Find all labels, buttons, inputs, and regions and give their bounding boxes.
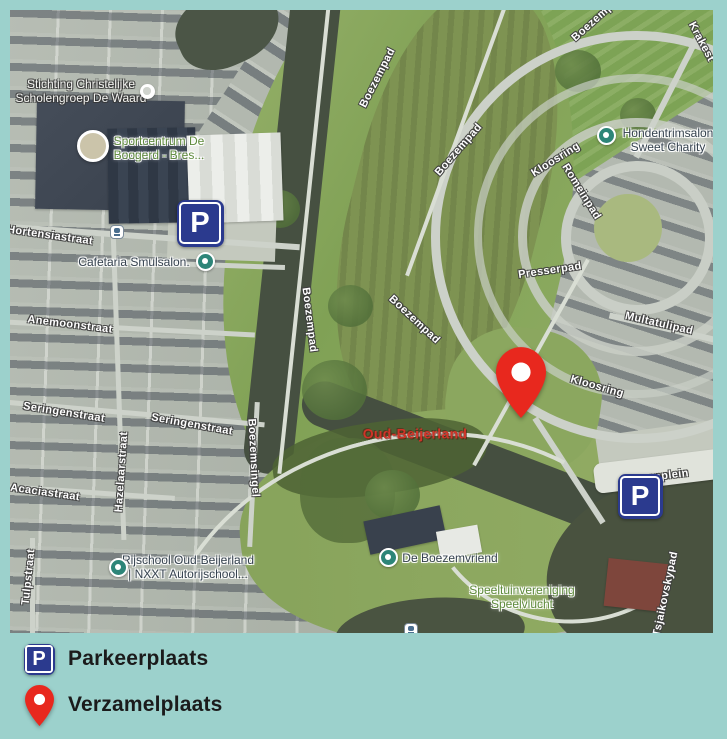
street-label: Kloosring xyxy=(569,373,625,401)
parking-icon: P xyxy=(177,200,224,247)
poi-dot-icon xyxy=(196,252,215,271)
poi-circle-icon xyxy=(140,84,155,99)
street-label: Anemoonstraat xyxy=(27,313,114,336)
legend-item-verzamelplaats: Verzamelplaats xyxy=(23,681,727,729)
map-legend: P Parkeerplaats Verzamelplaats xyxy=(0,633,727,739)
street-label: Boezempad xyxy=(433,121,486,179)
poi-dot-icon xyxy=(109,558,128,577)
poi-photo-icon xyxy=(77,130,109,162)
street-label: Presserpad xyxy=(517,260,582,282)
satellite-map: HortensiastraatAnemoonstraatSeringenstra… xyxy=(10,10,713,633)
legend-icon-cell: P xyxy=(23,644,55,675)
parking-icon: P xyxy=(618,474,663,519)
street-label: Romeinpad xyxy=(559,162,604,223)
street-label: Seringenstraat xyxy=(150,411,234,438)
street-label: Acaciastraat xyxy=(10,482,81,505)
legend-label-parkeerplaats: Parkeerplaats xyxy=(68,647,208,671)
poi-label: Cafetaria Smulsalon. xyxy=(78,255,189,269)
poi-label: De Boezemvriend xyxy=(402,551,497,565)
street-label: Hortensiastraat xyxy=(10,224,94,249)
street-label: Boezemsingel xyxy=(244,418,261,497)
bus-stop-icon xyxy=(404,623,418,633)
legend-item-parkeerplaats: P Parkeerplaats xyxy=(23,640,727,678)
legend-icon-cell xyxy=(23,685,55,726)
poi-dot-icon xyxy=(379,548,398,567)
street-label: Boezempad xyxy=(299,287,320,353)
poi-label: Sportcentrum DeBoogerd - Bres... xyxy=(114,134,205,162)
street-label: Seringenstraat xyxy=(22,400,106,426)
street-label: Boezempad xyxy=(357,46,398,110)
legend-label-verzamelplaats: Verzamelplaats xyxy=(68,693,223,717)
street-label: Krakest xyxy=(685,20,713,64)
parking-icon: P xyxy=(24,644,55,675)
street-label: Boezempad xyxy=(569,10,626,45)
poi-dot-icon xyxy=(597,126,616,145)
poi-label: HondentrimsalonSweet Charity xyxy=(623,126,713,154)
assembly-pin-icon xyxy=(25,685,54,726)
street-label: Multatulipad xyxy=(624,310,695,338)
street-label: Tulpstraat xyxy=(20,548,39,605)
poi-label: SpeeltuinverenigingSpeelvlucht xyxy=(469,583,574,611)
street-label: Boezempad xyxy=(386,293,443,347)
poi-label: Stichting ChristelijkeScholengroep De Wa… xyxy=(16,77,147,105)
assembly-pin-icon xyxy=(496,347,546,418)
map-annotations: HortensiastraatAnemoonstraatSeringenstra… xyxy=(10,10,713,633)
street-label: Hazelaarstraat xyxy=(113,431,132,513)
bus-stop-icon xyxy=(110,225,124,239)
locality-label: Oud-Beijerland xyxy=(363,426,468,443)
poi-label: Rijschool Oud-Beijerland| NXXT Autorijsc… xyxy=(122,553,254,581)
street-label: Tsjaikovskypad xyxy=(651,550,682,633)
flyer-page: { "icons": { "parking_letter": "P" }, "c… xyxy=(0,0,727,739)
